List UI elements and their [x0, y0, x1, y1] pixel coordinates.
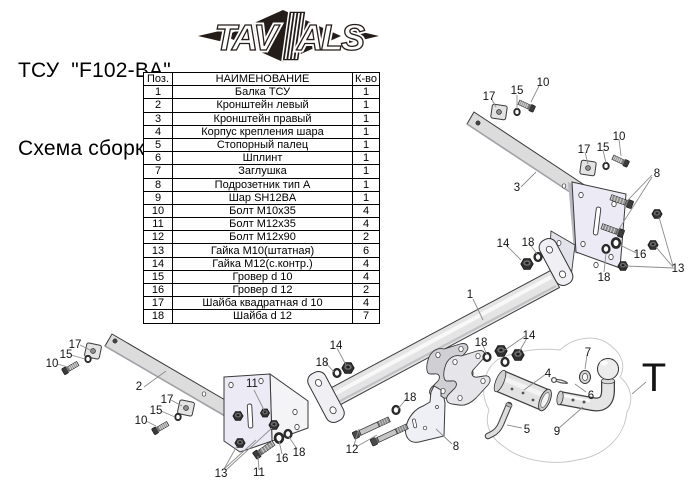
callout-7: 7 — [585, 347, 591, 359]
callout-13: 13 — [215, 468, 228, 480]
callout-15: 15 — [60, 349, 73, 361]
callout-8: 8 — [654, 168, 660, 180]
table-cell: Болт М12х90 — [173, 231, 353, 244]
callout-12: 12 — [346, 444, 359, 456]
table-cell: 6 — [353, 244, 380, 257]
table-cell: 1 — [353, 152, 380, 165]
callout-8: 8 — [453, 441, 459, 453]
table-cell: Корпус крепления шара — [173, 125, 353, 138]
callout-18: 18 — [293, 447, 306, 459]
square-washer — [491, 104, 508, 120]
callout-14: 14 — [497, 238, 510, 250]
callout-13: 13 — [672, 263, 685, 275]
callout-3: 3 — [514, 182, 520, 194]
table-cell: 3 — [144, 112, 173, 125]
table-cell: Гровер d 10 — [173, 270, 353, 283]
table-cell: Гровер d 12 — [173, 284, 353, 297]
table-cell: 10 — [144, 204, 173, 217]
table-row: 9Шар SH12BA1 — [144, 191, 380, 204]
table-cell: 1 — [353, 138, 380, 151]
table-cell: 4 — [353, 218, 380, 231]
table-cell: 6 — [144, 152, 173, 165]
callout-10: 10 — [135, 415, 148, 427]
callout-14: 14 — [523, 330, 536, 342]
table-cell: 1 — [353, 178, 380, 191]
callout-10: 10 — [46, 358, 59, 370]
callout-14: 14 — [330, 340, 343, 352]
table-cell: 4 — [353, 204, 380, 217]
table-row: 12Болт М12х902 — [144, 231, 380, 244]
table-cell: Заглушка — [173, 165, 353, 178]
callout-9: 9 — [554, 426, 560, 438]
column-header-2: К-во — [353, 73, 380, 86]
table-row: 1Балка ТСУ1 — [144, 86, 380, 99]
table-row: 16Гровер d 122 — [144, 284, 380, 297]
callout-17: 17 — [483, 91, 496, 103]
table-cell: 1 — [144, 86, 173, 99]
table-cell: Гайка М10(штатная) — [173, 244, 353, 257]
table-row: 3Кронштейн правый1 — [144, 112, 380, 125]
table-cell: 7 — [144, 165, 173, 178]
table-cell: 1 — [353, 191, 380, 204]
table-row: 6Шплинт1 — [144, 152, 380, 165]
table-row: 5Стопорный палец1 — [144, 138, 380, 151]
table-row: 13Гайка М10(штатная)6 — [144, 244, 380, 257]
table-row: 8Подрозетник тип А1 — [144, 178, 380, 191]
callout-17: 17 — [161, 394, 174, 406]
callout-11: 11 — [246, 378, 258, 390]
table-cell: 14 — [144, 257, 173, 270]
table-cell: 15 — [144, 270, 173, 283]
callout-16: 16 — [276, 453, 289, 465]
table-cell: 4 — [353, 297, 380, 310]
table-cell: Шайба d 12 — [173, 310, 353, 323]
table-cell: 1 — [353, 165, 380, 178]
table-cell: Подрозетник тип А — [173, 178, 353, 191]
callout-15: 15 — [597, 142, 610, 154]
callout-15: 15 — [150, 405, 163, 417]
callout-18: 18 — [475, 337, 488, 349]
table-cell: Шплинт — [173, 152, 353, 165]
table-cell: 1 — [353, 86, 380, 99]
table-cell: Болт М12х35 — [173, 218, 353, 231]
table-row: 18Шайба d 127 — [144, 310, 380, 323]
table-cell: 2 — [353, 284, 380, 297]
table-cell: 18 — [144, 310, 173, 323]
table-cell: 17 — [144, 297, 173, 310]
table-cell: 1 — [353, 99, 380, 112]
table-row: 10Болт М10х354 — [144, 204, 380, 217]
table-cell: Кронштейн левый — [173, 99, 353, 112]
table-cell: 2 — [144, 99, 173, 112]
table-cell: 7 — [353, 310, 380, 323]
column-header-1: НАИМЕНОВАНИЕ — [173, 73, 353, 86]
parts-table-body: 1Балка ТСУ12Кронштейн левый13Кронштейн п… — [144, 86, 380, 323]
parts-table: Поз.НАИМЕНОВАНИЕК-во 1Балка ТСУ12Кронште… — [143, 72, 380, 324]
callout-2: 2 — [136, 381, 142, 393]
table-cell: 9 — [144, 191, 173, 204]
table-cell: Стопорный палец — [173, 138, 353, 151]
parts-table-header: Поз.НАИМЕНОВАНИЕК-во — [144, 73, 380, 86]
table-cell: 1 — [353, 112, 380, 125]
table-cell: Шайба квадратная d 10 — [173, 297, 353, 310]
callout-15: 15 — [511, 85, 524, 97]
table-row: 7Заглушка1 — [144, 165, 380, 178]
table-cell: 4 — [353, 270, 380, 283]
table-cell: Кронштейн правый — [173, 112, 353, 125]
table-cell: 8 — [144, 178, 173, 191]
callout-10: 10 — [613, 131, 626, 143]
callout-18: 18 — [598, 272, 611, 284]
callout-17: 17 — [578, 144, 591, 156]
table-cell: Балка ТСУ — [173, 86, 353, 99]
table-row: 15Гровер d 104 — [144, 270, 380, 283]
table-cell: 4 — [144, 125, 173, 138]
table-cell: Шар SH12BA — [173, 191, 353, 204]
table-cell: 16 — [144, 284, 173, 297]
callout-1: 1 — [467, 289, 473, 301]
table-cell: 13 — [144, 244, 173, 257]
part-cap — [580, 371, 591, 384]
callout-18: 18 — [404, 392, 417, 404]
table-cell: 2 — [353, 231, 380, 244]
callout-T: T — [642, 356, 666, 400]
assembly-scheme-page: ТСУ "F102-BA" Схема сборки TAV TAV ALS A… — [0, 0, 700, 495]
table-cell: 12 — [144, 231, 173, 244]
table-row: 2Кронштейн левый1 — [144, 99, 380, 112]
table-row: 17Шайба квадратная d 104 — [144, 297, 380, 310]
callout-18: 18 — [316, 357, 329, 369]
table-cell: 5 — [144, 138, 173, 151]
table-row: 11Болт М12х354 — [144, 218, 380, 231]
callout-10: 10 — [537, 77, 550, 89]
callout-18: 18 — [522, 237, 535, 249]
callout-5: 5 — [524, 424, 530, 436]
table-cell: Гайка М12(с.контр.) — [173, 257, 353, 270]
table-cell: 1 — [353, 125, 380, 138]
table-cell: 11 — [144, 218, 173, 231]
table-cell: 4 — [353, 257, 380, 270]
callout-4: 4 — [545, 368, 552, 380]
column-header-0: Поз. — [144, 73, 173, 86]
table-cell: Болт М10х35 — [173, 204, 353, 217]
callout-11: 11 — [253, 467, 265, 479]
table-row: 14Гайка М12(с.контр.)4 — [144, 257, 380, 270]
callout-16: 16 — [634, 249, 647, 261]
table-row: 4Корпус крепления шара1 — [144, 125, 380, 138]
callout-6: 6 — [588, 390, 594, 402]
